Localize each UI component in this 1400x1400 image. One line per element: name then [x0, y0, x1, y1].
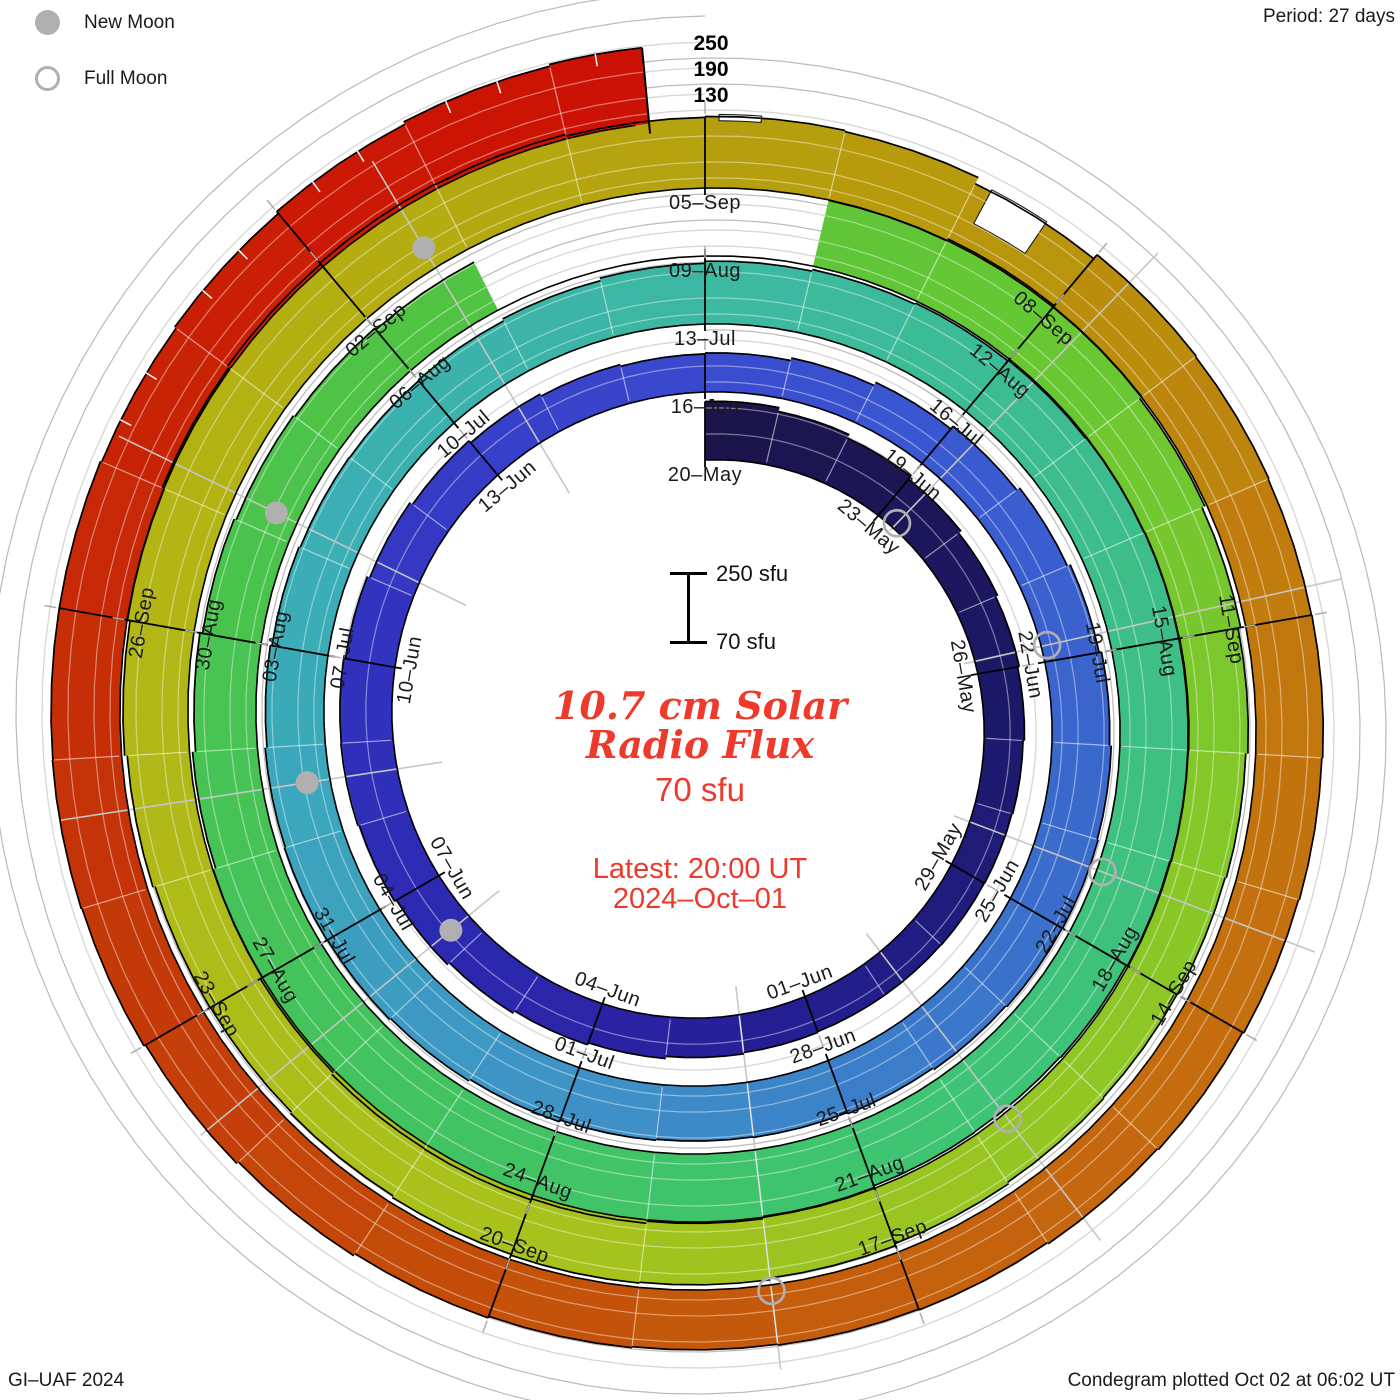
- scalebar-bottom-label: 70 sfu: [716, 629, 776, 655]
- new-moon-icon: [35, 10, 60, 35]
- gap-dash: [920, 1313, 924, 1324]
- date-label: 09–Aug: [669, 260, 741, 282]
- new-moon-marker: [412, 236, 435, 259]
- date-label: 20–May: [668, 464, 742, 486]
- gap-dash: [483, 1321, 487, 1332]
- scalebar-bottom-cap: [670, 641, 707, 644]
- date-label: 05–Sep: [669, 192, 741, 214]
- plotted-timestamp: Condegram plotted Oct 02 at 06:02 UT: [1068, 1370, 1395, 1392]
- full-moon-icon: [35, 66, 60, 91]
- credit-label: GI–UAF 2024: [8, 1370, 124, 1392]
- chart-title-line2: Radio Flux: [490, 725, 910, 764]
- gap-dash: [44, 606, 56, 608]
- center-text-block: 10.7 cm Solar Radio Flux 70 sfu Latest: …: [490, 686, 910, 914]
- legend-full-moon: Full Moon: [35, 66, 167, 91]
- latest-time-label: Latest: 20:00 UT: [490, 854, 910, 884]
- condegram-plot: 20–May23–May26–May29–May01–Jun04–Jun07–J…: [0, 0, 1400, 1400]
- radial-axis-130: 130: [688, 84, 734, 108]
- latest-flux-value: 70 sfu: [490, 772, 910, 808]
- flux-bar: [666, 1015, 744, 1058]
- flux-bar: [640, 1217, 771, 1284]
- date-label: 13–Jul: [674, 328, 736, 350]
- radial-axis-250: 250: [688, 32, 734, 56]
- chart-title-line1: 10.7 cm Solar: [490, 686, 910, 725]
- new-moon-marker: [439, 919, 462, 942]
- period-label: Period: 27 days: [1263, 6, 1395, 28]
- latest-date-label: 2024–Oct–01: [490, 884, 910, 914]
- full-moon-label: Full Moon: [84, 68, 167, 90]
- new-moon-marker: [265, 501, 288, 524]
- flux-bar: [265, 744, 343, 848]
- legend-new-moon: New Moon: [35, 10, 175, 35]
- flux-bar: [705, 117, 845, 200]
- scalebar-top-cap: [670, 572, 707, 575]
- flux-bar: [341, 740, 408, 826]
- scalebar-top-label: 250 sfu: [716, 561, 788, 587]
- new-moon-label: New Moon: [84, 12, 175, 34]
- new-moon-marker: [296, 771, 319, 794]
- gap-dash: [1315, 612, 1327, 614]
- scalebar-stem: [687, 573, 690, 642]
- date-label: 16–Jun: [671, 396, 740, 418]
- radial-axis-190: 190: [688, 58, 734, 82]
